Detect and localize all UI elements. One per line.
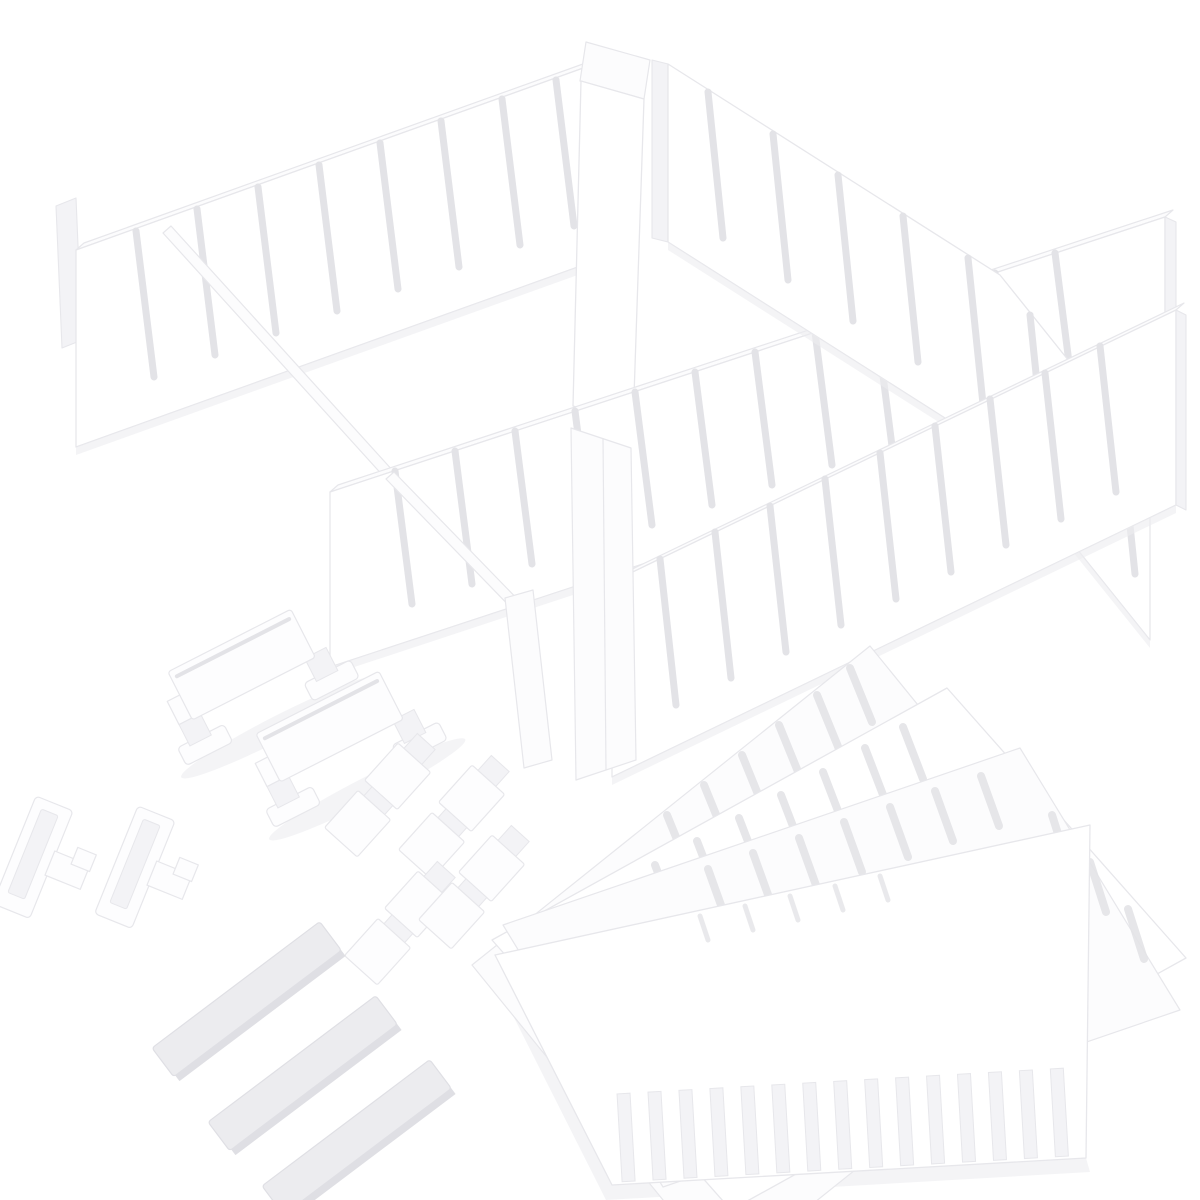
bracket-blade xyxy=(168,609,315,720)
product-photo-canvas: White adjustable plastic drawer divider … xyxy=(0,0,1200,1200)
flat-strips xyxy=(152,922,456,1200)
corner-block-1 xyxy=(0,796,108,933)
cross-panel-upper-strip xyxy=(573,81,644,426)
product-photo: White adjustable plastic drawer divider … xyxy=(0,0,1200,1200)
right-panel-end-face xyxy=(652,60,668,242)
left-panel-bottom-tab xyxy=(505,590,552,768)
corner-connector-blocks xyxy=(0,796,210,943)
back-panel-face xyxy=(76,62,600,447)
front-panel-end-face xyxy=(1176,310,1186,510)
corner-block-2 xyxy=(95,806,211,943)
